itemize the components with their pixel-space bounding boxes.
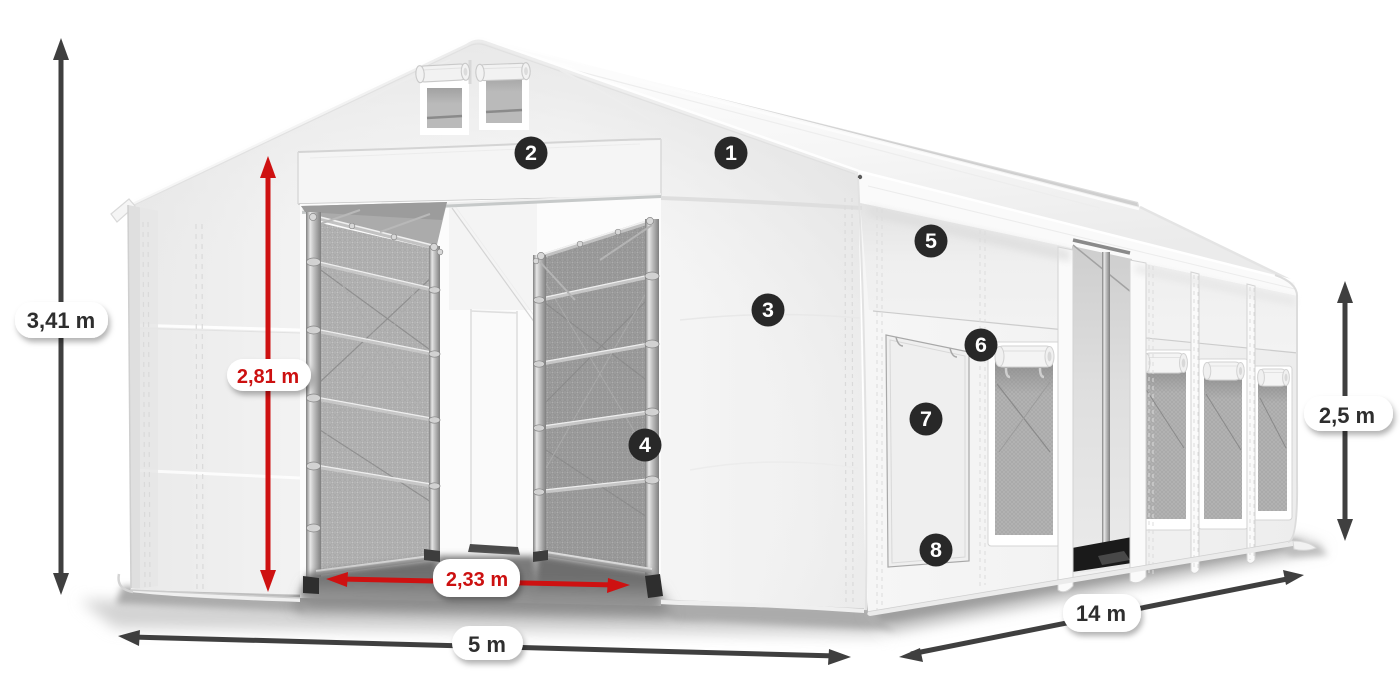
- svg-text:14 m: 14 m: [1076, 601, 1126, 626]
- svg-text:3,41 m: 3,41 m: [27, 308, 96, 333]
- svg-text:4: 4: [639, 433, 651, 457]
- svg-text:2,33 m: 2,33 m: [446, 569, 508, 591]
- svg-text:5 m: 5 m: [468, 632, 506, 657]
- svg-text:1: 1: [725, 141, 737, 165]
- svg-text:2,81 m: 2,81 m: [237, 366, 299, 388]
- svg-text:2,5 m: 2,5 m: [1319, 403, 1375, 428]
- svg-text:5: 5: [925, 229, 937, 253]
- svg-text:8: 8: [930, 538, 942, 562]
- svg-text:3: 3: [762, 298, 774, 322]
- svg-text:6: 6: [975, 333, 987, 357]
- svg-text:2: 2: [525, 141, 537, 165]
- svg-text:7: 7: [920, 407, 932, 431]
